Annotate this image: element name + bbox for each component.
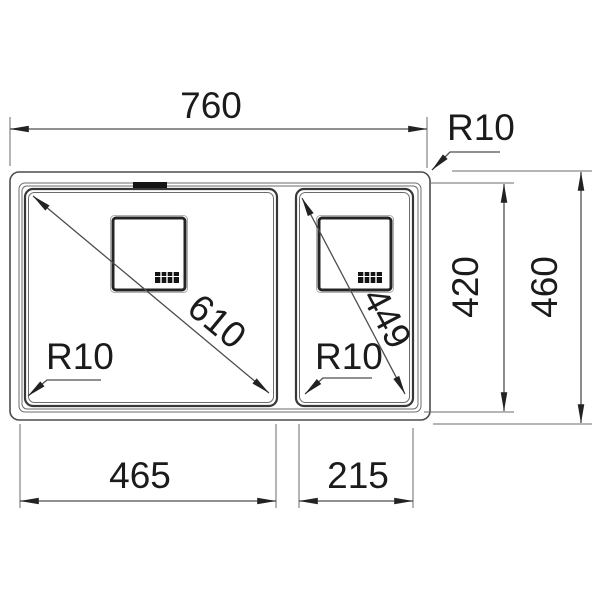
dimension-right-bowl-width: 215 [299, 424, 413, 508]
right-drain-grate-icon [358, 272, 382, 283]
dimension-left-bowl-width: 465 [20, 424, 276, 508]
left-drain [111, 216, 188, 293]
right-drain [317, 216, 394, 293]
dimension-label-215: 215 [327, 455, 389, 496]
dimension-label-465: 465 [109, 455, 171, 496]
dimension-label-460: 460 [524, 256, 565, 318]
radius-label-top-right: R10 [447, 107, 515, 148]
dimension-label-760: 760 [180, 85, 242, 126]
left-drain-grate-icon [155, 272, 179, 283]
leader-line [432, 152, 500, 170]
dimension-inner-depth: 420 [424, 183, 514, 412]
sink-dimension-drawing: 760 R10 420 460 465 215 610 [0, 0, 600, 600]
dimension-label-420: 420 [445, 256, 486, 318]
radius-label-left-bowl: R10 [46, 336, 114, 377]
technical-drawing-canvas: 760 R10 420 460 465 215 610 [0, 0, 600, 600]
dimension-overall-width: 760 [10, 85, 427, 168]
tap-hole-mark [133, 182, 167, 188]
radius-label-right-bowl: R10 [315, 336, 383, 377]
callout-outer-corner-radius: R10 [432, 107, 515, 170]
